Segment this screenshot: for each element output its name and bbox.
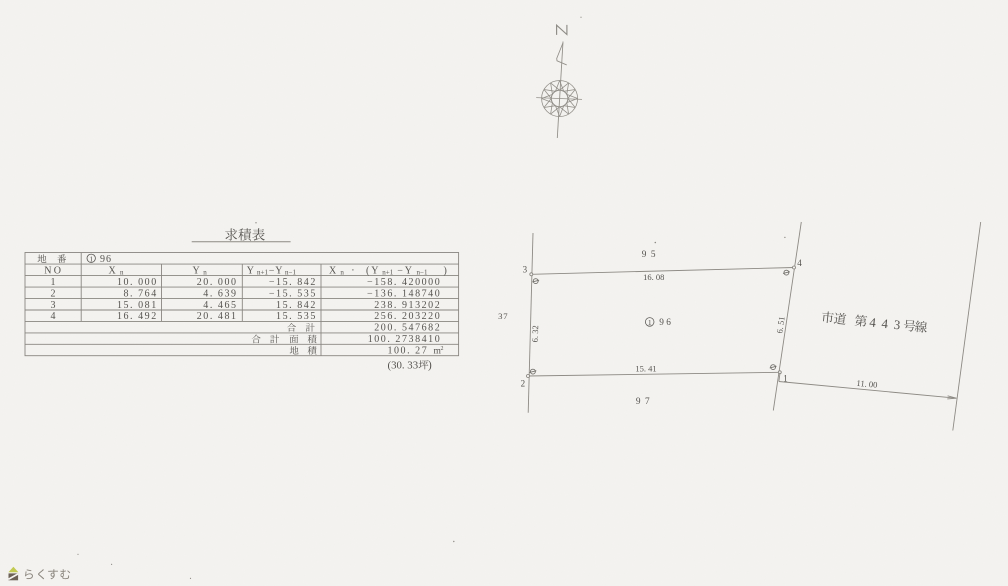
svg-text:2: 2 (521, 379, 526, 389)
svg-text:4. 465: 4. 465 (203, 300, 237, 311)
svg-text:15. 842: 15. 842 (276, 300, 317, 311)
svg-text:20. 481: 20. 481 (197, 311, 238, 322)
svg-text:n−1: n−1 (417, 269, 428, 277)
svg-text:3: 3 (51, 300, 56, 311)
svg-text:20. 000: 20. 000 (197, 277, 238, 288)
svg-text:16. 492: 16. 492 (117, 311, 158, 322)
svg-text:n: n (203, 269, 207, 277)
svg-text:256. 203220: 256. 203220 (374, 311, 441, 322)
svg-text:10. 000: 10. 000 (117, 277, 158, 288)
svg-text:97: 97 (636, 397, 654, 407)
svg-text:2: 2 (441, 346, 444, 352)
svg-text:16. 08: 16. 08 (643, 272, 664, 282)
svg-text:n+1: n+1 (382, 269, 393, 277)
svg-text:1: 1 (89, 254, 93, 263)
svg-text:238. 913202: 238. 913202 (374, 300, 441, 311)
svg-text:1: 1 (51, 277, 56, 288)
svg-text:Y: Y (193, 265, 200, 276)
svg-text:): ) (444, 265, 447, 276)
svg-text:X: X (109, 265, 117, 276)
svg-text:15. 081: 15. 081 (117, 300, 158, 311)
svg-text:−: − (397, 265, 403, 276)
svg-text:4. 639: 4. 639 (203, 288, 237, 299)
svg-text:−: − (269, 265, 275, 276)
svg-text:15. 535: 15. 535 (276, 311, 317, 322)
svg-text:Y: Y (247, 265, 254, 276)
svg-text:8. 764: 8. 764 (123, 288, 157, 299)
svg-text:100. 27: 100. 27 (387, 346, 428, 357)
svg-text:−15. 842: −15. 842 (269, 277, 317, 288)
svg-text:): ) (428, 360, 432, 372)
svg-text:15. 41: 15. 41 (635, 363, 656, 373)
svg-text:(30. 33: (30. 33 (388, 360, 419, 372)
svg-text:Y: Y (405, 265, 412, 276)
svg-text:−15. 535: −15. 535 (269, 288, 317, 299)
svg-text:·: · (351, 265, 354, 276)
svg-text:95: 95 (642, 250, 660, 260)
svg-text:n: n (340, 269, 344, 277)
svg-text:NO: NO (44, 265, 63, 276)
svg-text:−158. 420000: −158. 420000 (367, 277, 441, 288)
svg-text:11. 00: 11. 00 (856, 378, 878, 390)
svg-text:6. 32: 6. 32 (530, 325, 540, 342)
svg-text:n+1: n+1 (257, 269, 268, 277)
svg-text:1: 1 (648, 318, 652, 327)
svg-text:n: n (120, 269, 124, 277)
svg-text:4: 4 (797, 258, 802, 268)
svg-text:37: 37 (498, 311, 508, 321)
svg-text:2: 2 (51, 288, 56, 299)
svg-text:−136. 148740: −136. 148740 (367, 288, 441, 299)
svg-text:Y: Y (275, 265, 282, 276)
svg-text:100. 2738410: 100. 2738410 (368, 334, 442, 345)
svg-text:Y: Y (371, 265, 378, 276)
svg-text:200. 547682: 200. 547682 (374, 323, 441, 334)
svg-text:3: 3 (523, 265, 528, 275)
svg-text:4: 4 (51, 311, 56, 322)
svg-text:96: 96 (659, 318, 673, 328)
svg-text:n−1: n−1 (285, 269, 296, 277)
svg-text:96: 96 (100, 254, 112, 265)
svg-text:X: X (329, 265, 337, 276)
